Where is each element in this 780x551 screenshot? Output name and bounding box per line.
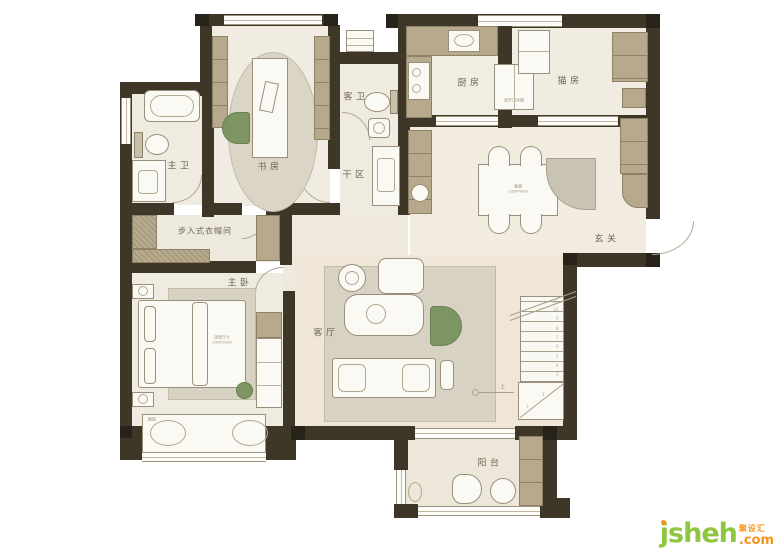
sofa-cushion-2 <box>402 364 430 392</box>
study-bookcase-east <box>314 36 330 140</box>
stair-num-3: 3 <box>556 372 559 377</box>
bedroom-doorway-floor <box>283 263 295 291</box>
mb-toilet-tank <box>134 132 143 158</box>
sofa-cushion-1 <box>338 364 366 392</box>
label-balcony: 阳台 <box>477 456 502 469</box>
watermark-brand: jsheh <box>660 520 737 547</box>
bathtub-inner <box>150 95 194 117</box>
watermark-tld: .com <box>739 534 774 547</box>
column-bay-sw <box>120 426 132 438</box>
stair-up-line <box>478 392 514 393</box>
water-heater-niche <box>346 30 374 52</box>
stair-num-1: 1 <box>526 404 529 409</box>
balcony-cabinet <box>519 436 543 506</box>
wall-closet-top-a <box>120 203 174 215</box>
wall-study-east-lower <box>328 203 340 215</box>
wall-hall-west <box>280 203 292 265</box>
column-entry <box>646 253 660 267</box>
label-cat-room: 猫房 <box>557 74 582 87</box>
closet-cabinet-right <box>256 215 280 261</box>
bay-window-glass <box>142 452 266 462</box>
stair-num-2: 2 <box>542 392 545 397</box>
label-study: 书房 <box>257 160 282 173</box>
kitchen-stove <box>408 62 430 100</box>
stair-num-4: 4 <box>556 363 559 368</box>
label-living: 客厅 <box>313 326 338 339</box>
column-balcony-se <box>543 426 557 440</box>
wall-balcony-sw-chunk <box>394 504 418 518</box>
living-lamp <box>345 271 359 285</box>
fridge-label: 双开门冰箱 <box>504 97 524 102</box>
balcony-west-window <box>396 470 406 506</box>
entry-door-arc <box>652 221 694 255</box>
dry-area-basin <box>377 158 395 192</box>
floorplan-canvas: 双开门冰箱 餐桌 (1800*900) 床垫尺寸 2000*2000 飘窗 <box>0 0 780 551</box>
entry-cabinet-upper <box>620 118 648 174</box>
study-top-window <box>224 15 322 25</box>
wall-right-lower <box>563 253 577 430</box>
balcony-sliding-door <box>415 428 515 439</box>
sofa-side-table <box>440 360 454 390</box>
living-ottoman <box>378 258 424 294</box>
hall-pet-basin <box>411 184 429 202</box>
watermark-side: 聚设汇 .com <box>739 523 774 547</box>
cat-cabinet-white <box>518 30 550 74</box>
stair-num-9: 9 <box>556 316 559 321</box>
bed-label-name: 床垫尺寸 <box>214 335 230 340</box>
column-nw <box>195 14 209 26</box>
bedroom-plant <box>236 382 253 399</box>
stair-up-label: 上 <box>500 383 505 390</box>
label-guest-bath: 客卫 <box>343 90 368 103</box>
stair-num-5: 5 <box>556 354 559 359</box>
cat-sliding-door <box>538 116 618 126</box>
dining-chair-2 <box>520 146 542 166</box>
label-closet: 步入式衣帽间 <box>178 226 232 237</box>
stair-num-6: 6 <box>556 344 559 349</box>
bay-cushion-2 <box>232 420 268 446</box>
study-chair <box>222 112 250 144</box>
mb-vanity-basin <box>138 170 158 194</box>
wall-bedroom-living-divider <box>283 291 295 428</box>
wall-exterior-left-lower <box>120 215 132 428</box>
cat-cabinet-tan <box>612 32 648 82</box>
closet-wardrobe-bottom <box>132 249 210 263</box>
wall-kitchen-cat-divider-upper <box>498 26 512 66</box>
bed-pillow-1 <box>144 306 156 342</box>
bedroom-wardrobe-top <box>256 312 282 338</box>
bedroom-dresser <box>256 338 282 408</box>
stair-num-7: 7 <box>556 335 559 340</box>
nightstand-bottom-lamp <box>138 394 148 404</box>
balcony-chair-2 <box>490 478 516 504</box>
balcony-south-window <box>416 506 544 516</box>
kitchen-sink-basin <box>454 34 474 47</box>
column-stair-top <box>563 253 577 265</box>
hall-floor <box>292 215 408 257</box>
stove-burner-1 <box>412 68 421 77</box>
wall-exterior-right-upper <box>646 14 660 219</box>
watermark-j-dot <box>661 520 666 525</box>
dining-chair-1 <box>488 146 510 166</box>
closet-wardrobe-left <box>132 215 157 249</box>
cat-box-small <box>622 88 646 108</box>
bed-duvet-fold <box>192 302 208 386</box>
label-entry: 玄关 <box>594 232 619 245</box>
bed-label: 床垫尺寸 2000*2000 <box>212 335 232 346</box>
label-master-bedroom: 主卧 <box>227 276 252 289</box>
dining-table-size: (1800*900) <box>508 190 528 194</box>
bed-label-size: 2000*2000 <box>212 341 232 345</box>
bed-pillow-2 <box>144 348 156 384</box>
balcony-chair-1 <box>452 474 482 504</box>
dining-table-label: 餐桌 (1800*900) <box>508 184 528 195</box>
stair-num-11: 11 <box>553 299 558 304</box>
coffee-table-tray <box>366 304 386 324</box>
column-kitchen-nw <box>386 14 398 28</box>
watermark: jsheh 聚设汇 .com <box>660 520 774 547</box>
bedroom-door-arc <box>255 267 283 293</box>
column-ne <box>646 14 660 28</box>
mb-toilet-bowl <box>145 134 169 155</box>
stair-num-8: 8 <box>556 326 559 331</box>
label-dry-area: 干区 <box>342 168 367 181</box>
watermark-brand-text: jsheh <box>660 518 737 549</box>
stair-up-circle <box>472 389 479 396</box>
entry-cabinet-lower <box>622 174 648 208</box>
master-bath-window <box>121 98 131 144</box>
gb-sink-basin <box>373 122 385 134</box>
stair-num-10: 10 <box>553 307 558 312</box>
gb-toilet-tank <box>390 90 398 114</box>
kitchen-sliding-door <box>436 116 500 126</box>
wall-balcony-west <box>394 426 408 470</box>
balcony-plant <box>408 482 422 502</box>
label-master-bath: 主卫 <box>167 159 192 172</box>
bay-window-label: 飘窗 <box>148 416 156 421</box>
stove-burner-2 <box>412 84 421 93</box>
wall-closet-top-b <box>204 203 242 215</box>
label-kitchen: 厨房 <box>457 76 482 89</box>
dining-table-name: 餐桌 <box>514 184 522 189</box>
study-bookcase-west <box>212 36 228 128</box>
column-study-ne <box>324 14 338 26</box>
bay-cushion-1 <box>150 420 186 446</box>
column-living-sw <box>291 426 305 440</box>
nightstand-top-lamp <box>138 286 148 296</box>
wall-balcony-se-chunk <box>540 498 570 518</box>
